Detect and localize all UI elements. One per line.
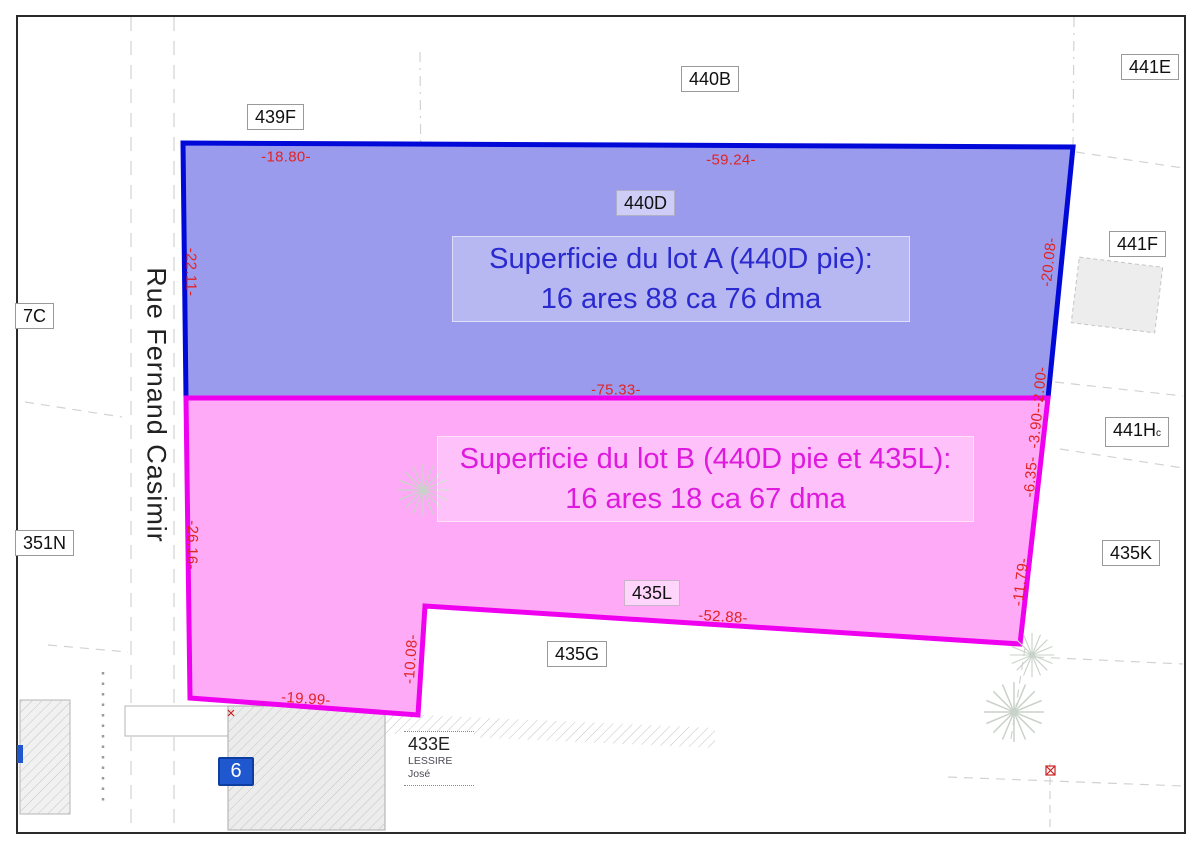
dimension-label: -52.88- <box>698 607 749 627</box>
parcel-label-441h-sub: c <box>1156 428 1161 439</box>
tree-icon <box>984 682 1044 742</box>
building-left-hatch <box>20 700 70 814</box>
building-441f <box>1071 257 1162 333</box>
house-number-badge: 6 <box>218 757 254 786</box>
dimension-label: -10.08- <box>401 634 421 685</box>
building-annex <box>125 706 228 736</box>
plan-drawing <box>0 0 1200 848</box>
parcel-label-441f: 441F <box>1109 231 1166 257</box>
parcel-label-440b: 440B <box>681 66 739 92</box>
dimension-label: -59.24- <box>706 152 756 169</box>
parcel-label-7c: 7C <box>15 303 54 329</box>
parcel-label-441h-text: 441H <box>1113 420 1156 440</box>
lot-b-area-line2: 16 ares 18 ca 67 dma <box>448 479 963 519</box>
dimension-label: -75.33- <box>591 382 641 399</box>
dimension-label: -18.80- <box>261 149 311 166</box>
parcel-label-441h: 441Hc <box>1105 417 1169 447</box>
street-name-label: Rue Fernand Casimir <box>141 267 172 543</box>
parcel-label-351n: 351N <box>15 530 74 556</box>
lot-a-area-label: Superficie du lot A (440D pie): 16 ares … <box>452 236 910 322</box>
parcel-label-435g: 435G <box>547 641 607 667</box>
parcel-label-439f: 439F <box>247 104 304 130</box>
parcel-label-435k: 435K <box>1102 540 1160 566</box>
parcel-label-435l: 435L <box>624 580 680 606</box>
parcel-label-441e: 441E <box>1121 54 1179 80</box>
owner-name-line2: José <box>408 768 470 781</box>
dimension-label: -6.35- <box>1021 456 1042 498</box>
parcel-owner-box: 433E LESSIRE José <box>404 731 474 786</box>
owner-name-line1: LESSIRE <box>408 755 470 768</box>
house-number-badge-cut <box>17 745 23 763</box>
cadastral-plan: Rue Fernand Casimir Superficie du lot A … <box>0 0 1200 848</box>
parcel-label-440d: 440D <box>616 190 675 216</box>
lot-a-area-line2: 16 ares 88 ca 76 dma <box>463 279 899 319</box>
dimension-label: -19.99- <box>281 689 332 709</box>
lot-b-area-label: Superficie du lot B (440D pie et 435L): … <box>437 436 974 522</box>
lot-b-area-line1: Superficie du lot B (440D pie et 435L): <box>448 439 963 479</box>
parcel-label-433e: 433E <box>408 734 470 755</box>
lot-a-area-line1: Superficie du lot A (440D pie): <box>463 239 899 279</box>
dimension-label: -26.16- <box>183 520 201 570</box>
dimension-label: -22.11- <box>183 248 200 297</box>
